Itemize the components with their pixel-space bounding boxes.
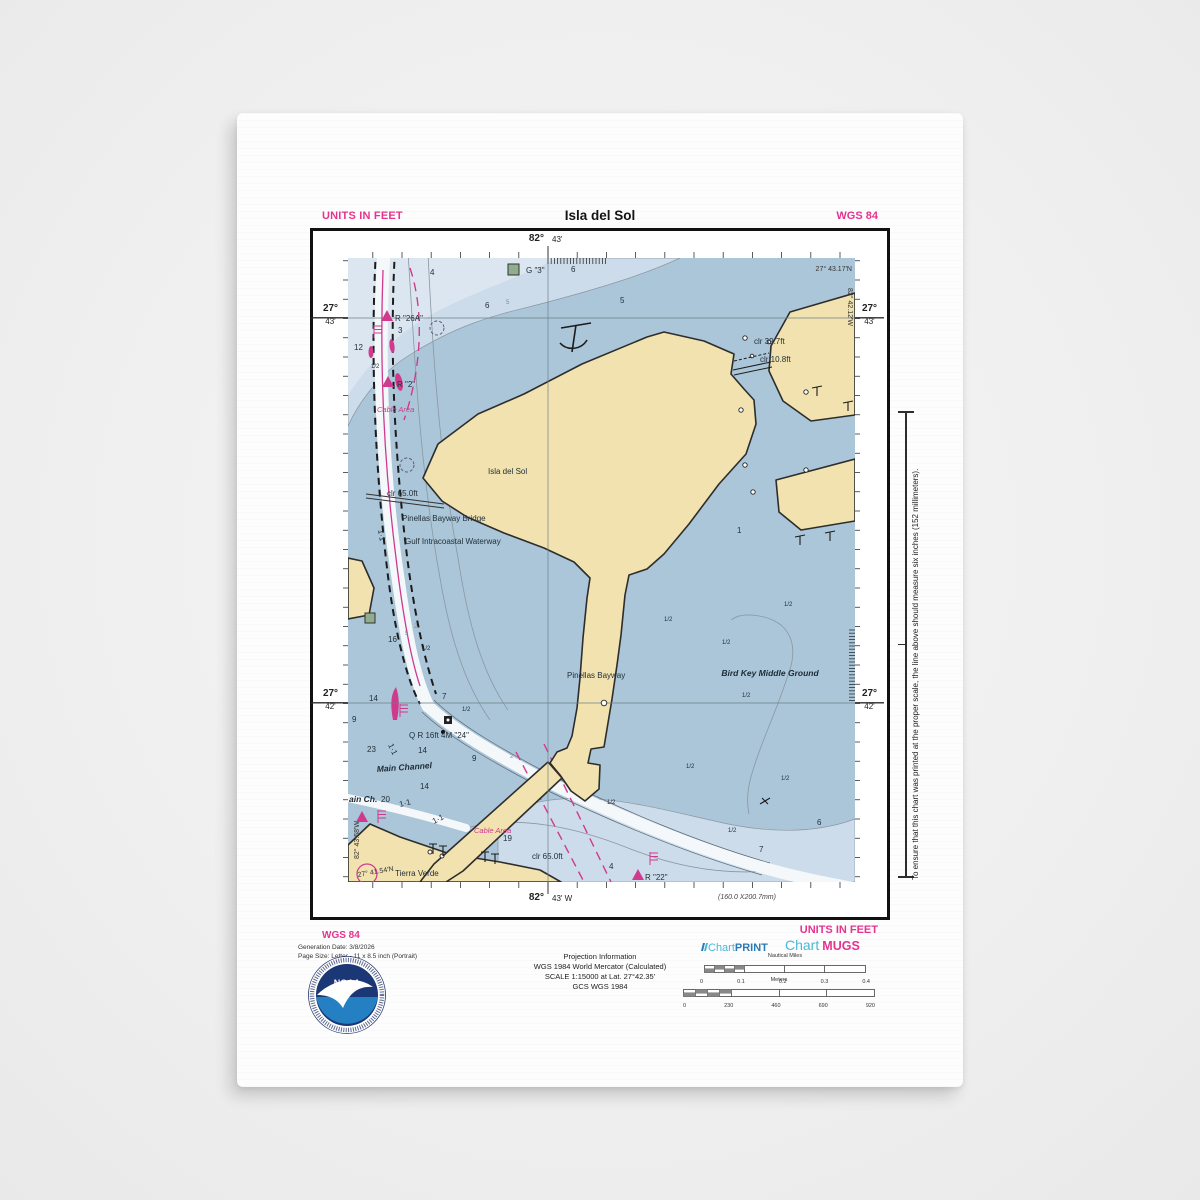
- scale-check-mid-tick: [898, 644, 906, 645]
- map-label: 27° 43.17'N: [816, 265, 852, 273]
- depth-sounding: 1/2: [686, 764, 695, 770]
- map-label: G "3": [526, 266, 545, 275]
- depth-sounding: 19: [503, 834, 512, 843]
- map-label: Pinellas Bayway Bridge: [402, 514, 486, 523]
- depth-sounding: 3: [398, 326, 403, 335]
- depth-sounding: 1/2: [664, 617, 673, 623]
- scalebar-bar: [683, 989, 875, 997]
- map-label: clr 65.0ft: [387, 489, 418, 498]
- lat-deg: 27°: [853, 688, 886, 699]
- lat-label-left-bottom: 27° 42': [313, 688, 348, 711]
- scalebar-tick-value: 920: [866, 1003, 875, 1009]
- depth-sounding: 1/2: [784, 602, 793, 608]
- top-lon-deg: 82°: [529, 233, 544, 244]
- depth-sounding: 1/2: [462, 707, 471, 713]
- scalebar-bar: [700, 965, 870, 973]
- print-size-label: (160.0 X200.7mm): [667, 894, 827, 901]
- chartprint-flag-icon: [698, 942, 708, 952]
- bottom-lon-min: 43' W: [552, 894, 572, 903]
- depth-sounding: 7: [442, 692, 447, 701]
- lat-deg: 27°: [853, 303, 886, 314]
- scalebar-tick-value: 0: [683, 1003, 686, 1009]
- scalebar-tick-value: 690: [819, 1003, 828, 1009]
- datum-label-top: WGS 84: [836, 210, 878, 222]
- depth-sounding: 1/2: [742, 693, 751, 699]
- map-label: 82° 43.58'W: [353, 821, 361, 859]
- map-label: clr 39.7ft: [754, 337, 785, 346]
- depth-sounding: 14: [369, 694, 378, 703]
- units-label-bottom: UNITS IN FEET: [800, 924, 878, 936]
- map-label: Bird Key Middle Ground: [721, 668, 819, 678]
- lat-label-right-top: 27° 43': [853, 303, 886, 326]
- depth-sounding: 4: [609, 862, 614, 871]
- map-label: Q R 16ft 4M "24": [409, 731, 469, 740]
- datum-label-bottom: WGS 84: [322, 930, 360, 941]
- lat-label-right-bottom: 27° 42': [853, 688, 886, 711]
- lat-deg: 27°: [313, 303, 348, 314]
- top-lon-min: 43': [552, 235, 562, 244]
- map-label: R "26A": [395, 314, 423, 323]
- scalebar-label: Meters: [683, 977, 875, 983]
- depth-sounding: 6: [817, 818, 822, 827]
- scalebar-meters: Meters 0230460690920: [683, 977, 875, 1009]
- depth-sounding: 6: [571, 265, 576, 274]
- depth-sounding: 1: [737, 526, 742, 535]
- green-beacon-g3: [508, 264, 519, 275]
- depth-sounding: 1/2: [371, 364, 380, 370]
- brand-chart: Chart: [785, 937, 819, 953]
- map-label: clr 10.8ft: [760, 355, 791, 364]
- lat-label-left-top: 27° 43': [313, 303, 348, 326]
- depth-sounding: 20: [381, 795, 390, 804]
- depth-sounding: 6: [485, 301, 490, 310]
- scalebar-ticks: 0230460690920: [683, 1003, 875, 1009]
- green-beacon: [365, 613, 375, 623]
- depth-sounding: 5: [620, 296, 625, 305]
- depth-sounding: 23: [367, 745, 376, 754]
- noaa-text: NOAA: [334, 978, 361, 988]
- map-label: R "22": [645, 873, 668, 882]
- bottom-lon-deg: 82°: [529, 892, 544, 903]
- depth-sounding: 1/2: [781, 776, 790, 782]
- depth-sounding: 14: [418, 746, 427, 755]
- depth-sounding: 1/2: [422, 646, 431, 652]
- map-label: Gulf Intracoastal Waterway: [405, 537, 501, 546]
- map-label: 82° 42.12'W: [846, 288, 854, 326]
- depth-sounding: 16: [388, 635, 397, 644]
- map-label: Isla del Sol: [488, 467, 527, 476]
- depth-sounding: 9: [352, 715, 357, 724]
- depth-sounding: 7: [759, 845, 764, 854]
- depth-sounding: 4: [430, 268, 435, 277]
- scalebar-label: Nautical Miles: [700, 953, 870, 959]
- depth-sounding: 9: [472, 754, 477, 763]
- noaa-logo: NOAA: [307, 955, 387, 1035]
- chartmugs-logo: Chart MUGS: [785, 937, 860, 953]
- depth-sounding: 1/2: [722, 640, 731, 646]
- scalebar-tick-value: 230: [724, 1003, 733, 1009]
- lat-deg: 27°: [313, 688, 348, 699]
- generation-date: Generation Date: 3/8/2026: [298, 944, 375, 951]
- brand-mugs: MUGS: [822, 939, 860, 953]
- map-label: clr 65.0ft: [532, 852, 563, 861]
- map-label: Tierra Verde: [395, 869, 439, 878]
- map-label: Cable Area: [377, 405, 414, 414]
- map-label: R "2": [397, 380, 415, 389]
- depth-sounding: 1/2: [607, 800, 616, 806]
- map-label: ain Ch.: [349, 794, 377, 804]
- depth-sounding: 1/2: [728, 828, 737, 834]
- page-background: { "header": {"units_left":"UNITS IN FEET…: [0, 0, 1200, 1200]
- scale-check-note: To ensure that this chart was printed at…: [911, 410, 920, 880]
- depth-sounding: 14: [420, 782, 429, 791]
- map-label: Pinellas Bayway: [567, 671, 625, 680]
- chart-map: G "3"27° 43.17'N82° 42.12'Wclr 39.7ftclr…: [348, 258, 855, 882]
- scalebar-tick-value: 460: [771, 1003, 780, 1009]
- depth-sounding: 12: [354, 343, 363, 352]
- canvas-print: UNITS IN FEET Isla del Sol WGS 84 82° 43…: [237, 113, 963, 1087]
